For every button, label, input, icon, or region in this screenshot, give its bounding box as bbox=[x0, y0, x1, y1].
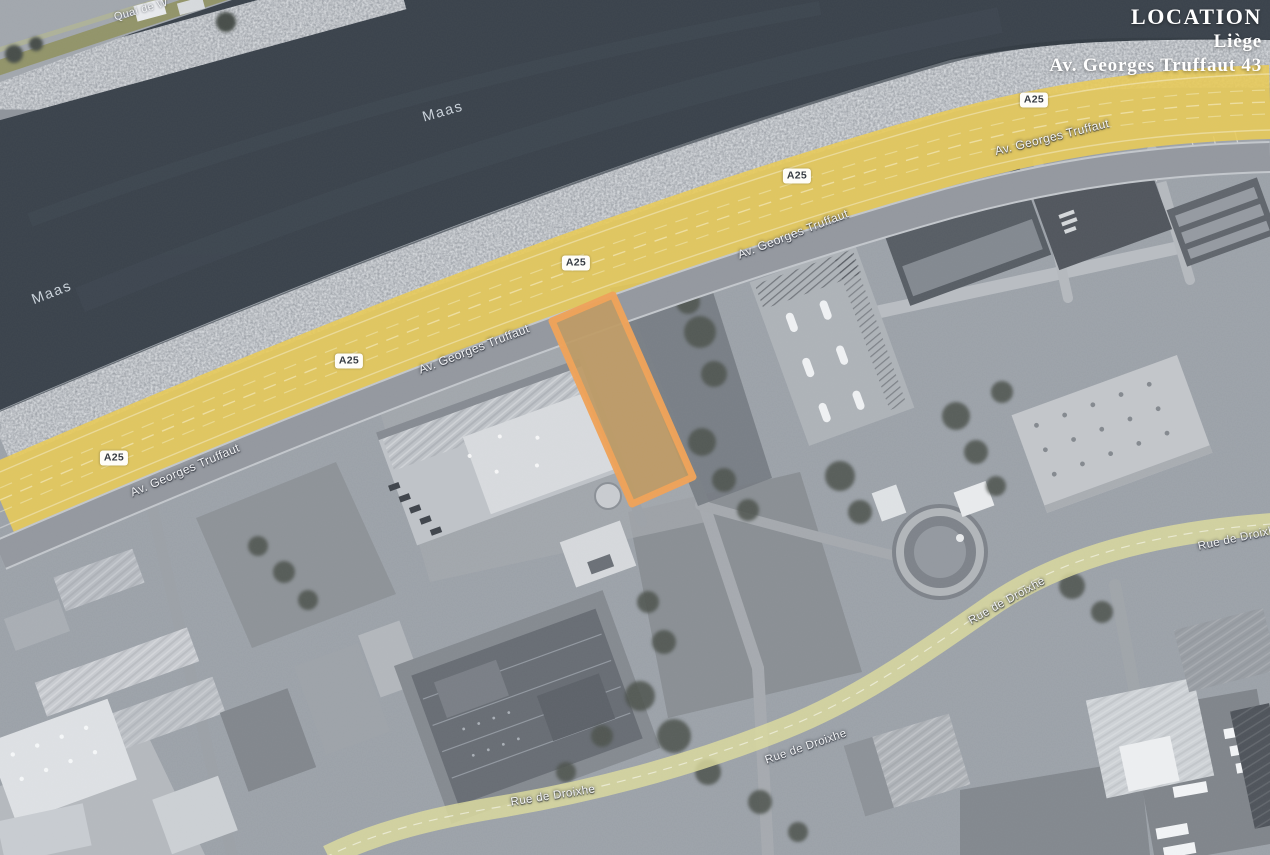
street-label-rue-de-droixhe: Rue de Droixhe bbox=[1197, 523, 1270, 553]
street-label-rue-de-droixhe: Rue de Droixhe bbox=[764, 727, 849, 766]
street-label-quai: Quai de W bbox=[113, 0, 170, 23]
river-label-maas: Maas bbox=[30, 278, 75, 308]
location-city: Liège bbox=[1049, 30, 1262, 54]
motorway-badge-a25: A25 bbox=[1020, 93, 1048, 108]
street-label-avenue-georges-truffaut: Av. Georges Truffaut bbox=[736, 206, 851, 261]
street-label-avenue-georges-truffaut: Av. Georges Truffaut bbox=[993, 116, 1110, 158]
map-labels-layer: Maas Maas Quai de W A25 A25 A25 A25 A25 … bbox=[0, 0, 1270, 855]
location-map-page: Maas Maas Quai de W A25 A25 A25 A25 A25 … bbox=[0, 0, 1270, 855]
street-label-avenue-georges-truffaut: Av. Georges Truffaut bbox=[128, 441, 242, 500]
motorway-badge-a25: A25 bbox=[335, 354, 363, 369]
location-title: LOCATION bbox=[1049, 4, 1262, 30]
motorway-badge-a25: A25 bbox=[100, 451, 128, 466]
street-label-rue-de-droixhe: Rue de Droixhe bbox=[967, 575, 1048, 627]
motorway-badge-a25: A25 bbox=[562, 256, 590, 271]
location-address: Av. Georges Truffaut 43 bbox=[1049, 54, 1262, 78]
motorway-badge-a25: A25 bbox=[783, 169, 811, 184]
street-label-avenue-georges-truffaut: Av. Georges Truffaut bbox=[417, 321, 532, 376]
river-label-maas: Maas bbox=[421, 99, 466, 126]
street-label-rue-de-droixhe: Rue de Droixhe bbox=[510, 783, 596, 808]
location-panel: LOCATION Liège Av. Georges Truffaut 43 bbox=[1049, 4, 1262, 78]
